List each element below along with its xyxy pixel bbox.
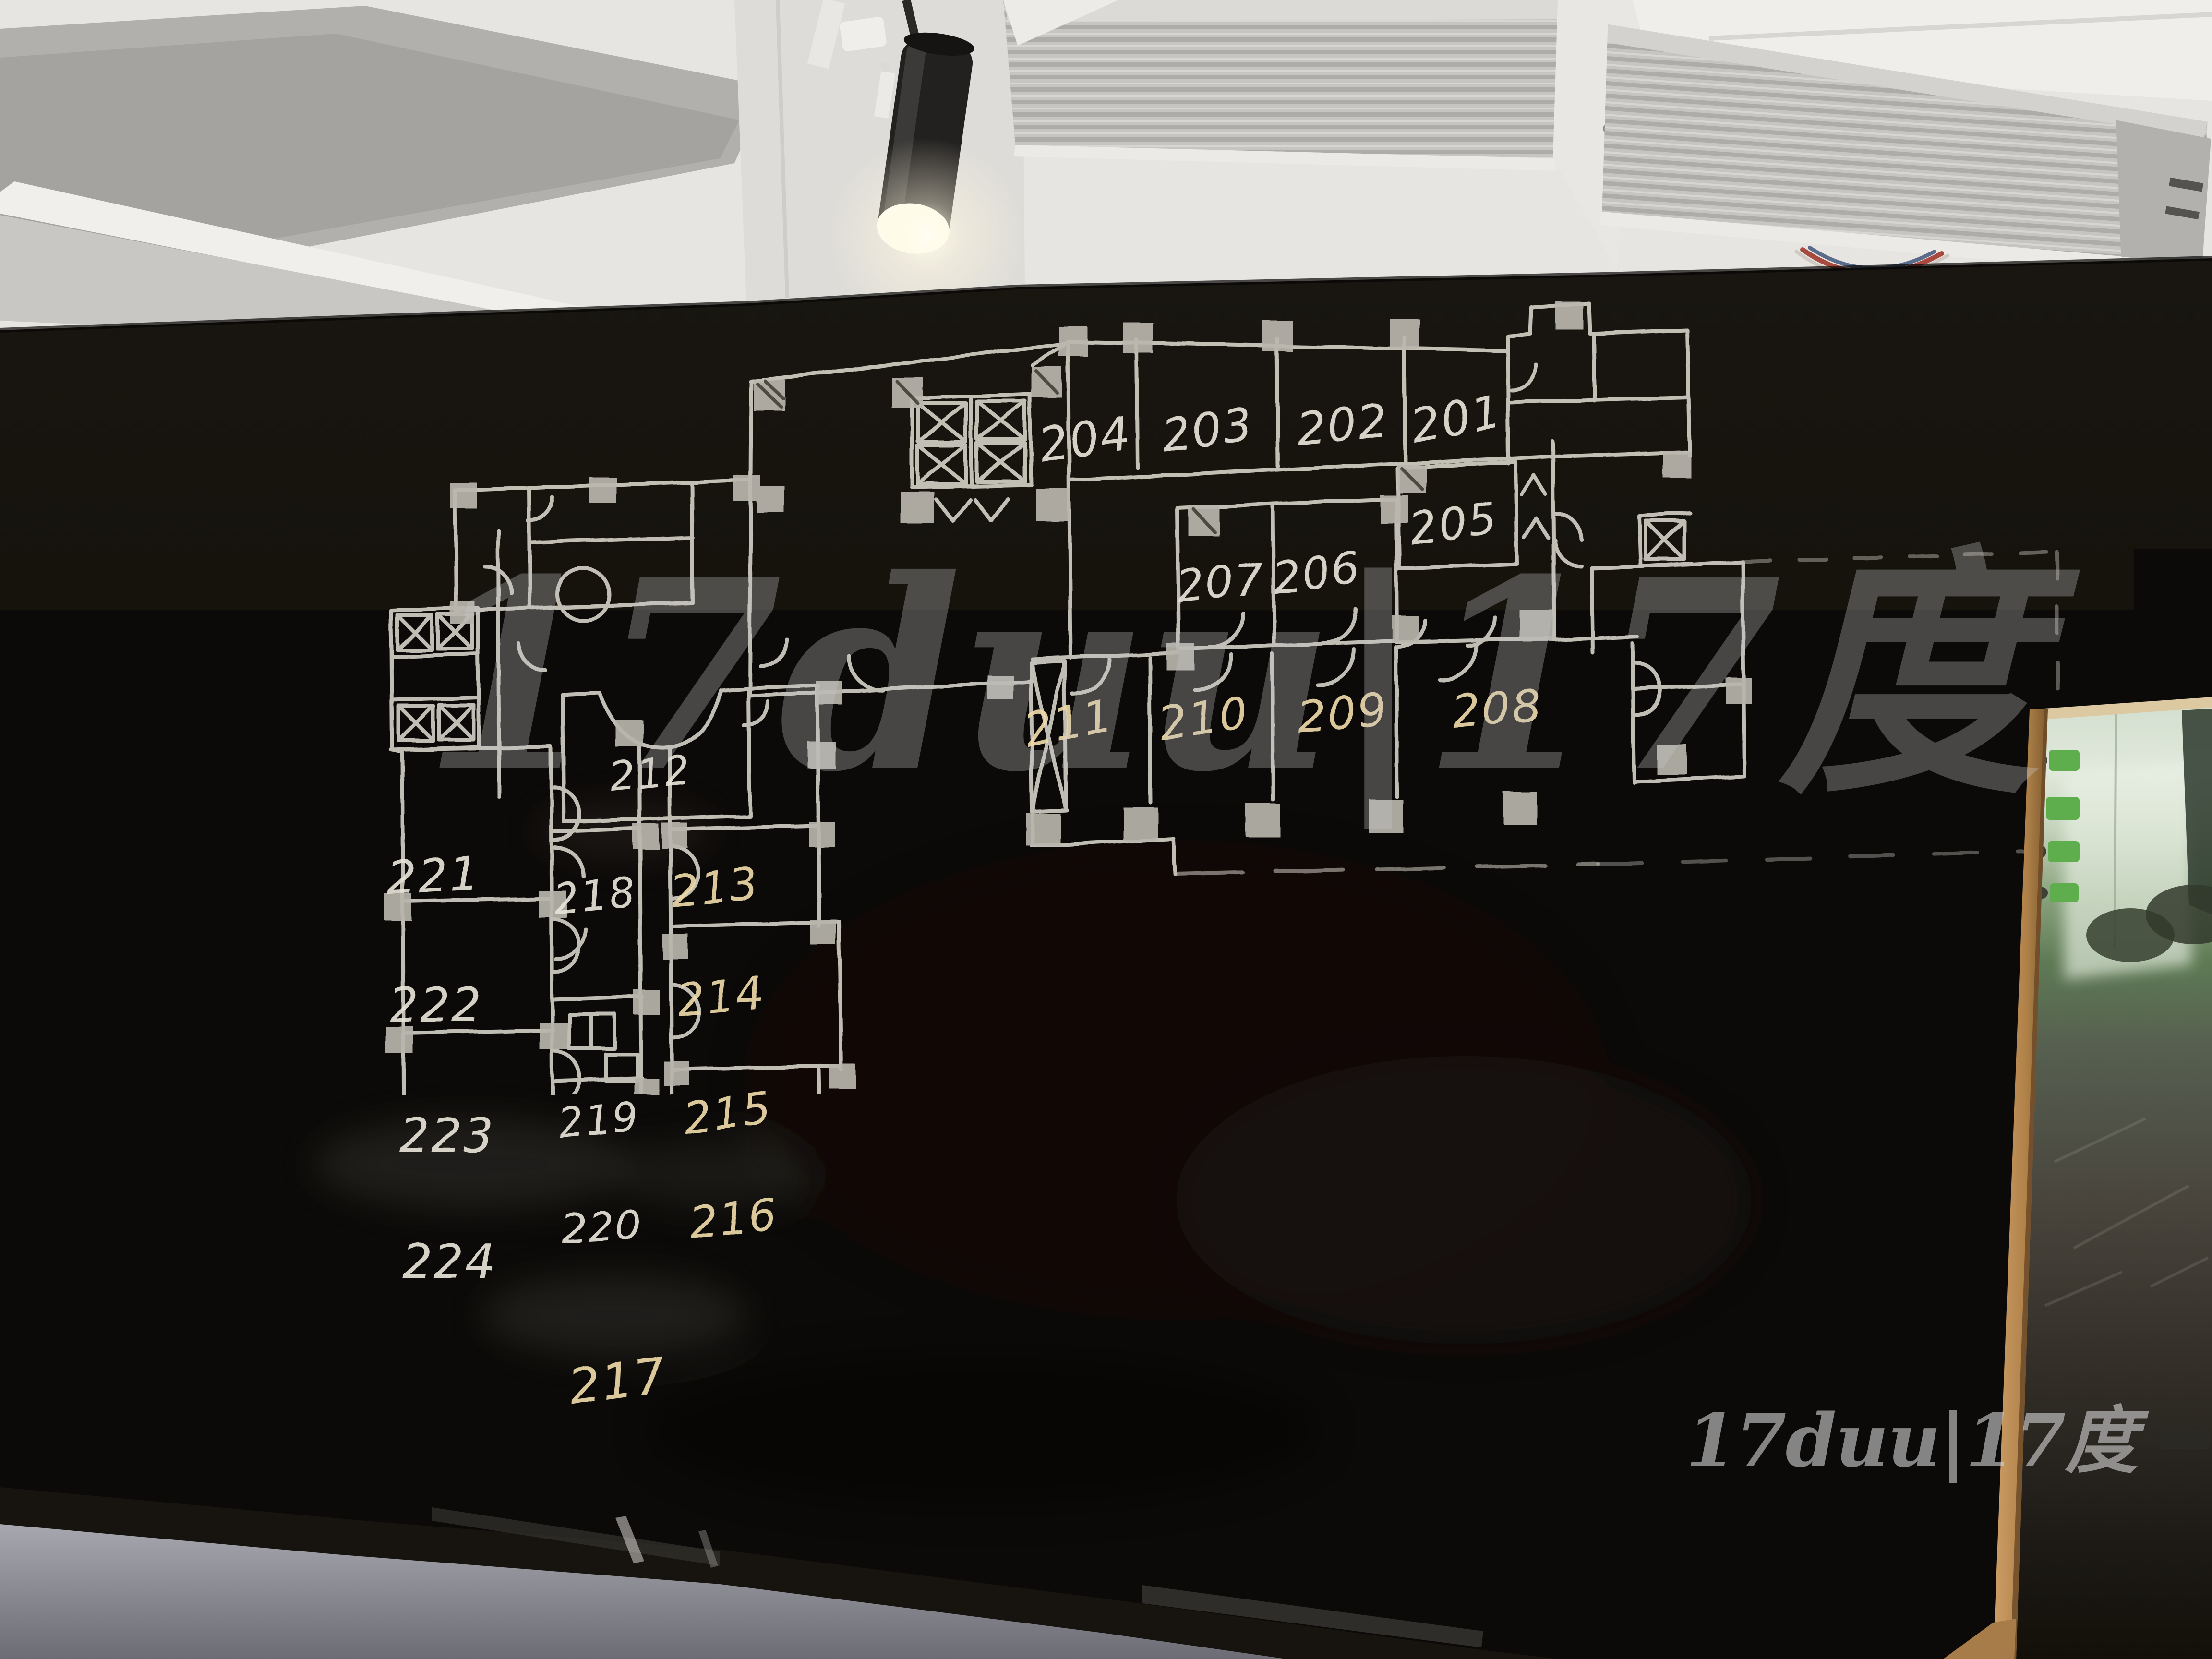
room-label-218: 218 (551, 867, 639, 924)
room-label-222: 222 (389, 978, 483, 1033)
room-label-221: 221 (385, 846, 482, 906)
room-label-223: 223 (399, 1107, 495, 1164)
room-label-208: 208 (1450, 680, 1544, 738)
photo-scene: 2012022032042052062072082092102112122132… (0, 0, 2212, 1659)
air-vent-left (1003, 0, 1567, 171)
room-label-214: 214 (675, 967, 768, 1026)
room-label-207: 207 (1174, 553, 1267, 612)
room-label-202: 202 (1294, 393, 1391, 456)
room-label-213: 213 (668, 857, 761, 918)
room-label-212: 212 (608, 746, 694, 801)
room-label-220: 220 (560, 1202, 643, 1253)
room-label-224: 224 (402, 1235, 496, 1289)
room-label-209: 209 (1295, 683, 1390, 745)
room-label-219: 219 (556, 1093, 641, 1147)
chalkboard-wall-scene: 2012022032042052062072082092102112122132… (0, 0, 2212, 1659)
room-label-216: 216 (687, 1189, 781, 1249)
